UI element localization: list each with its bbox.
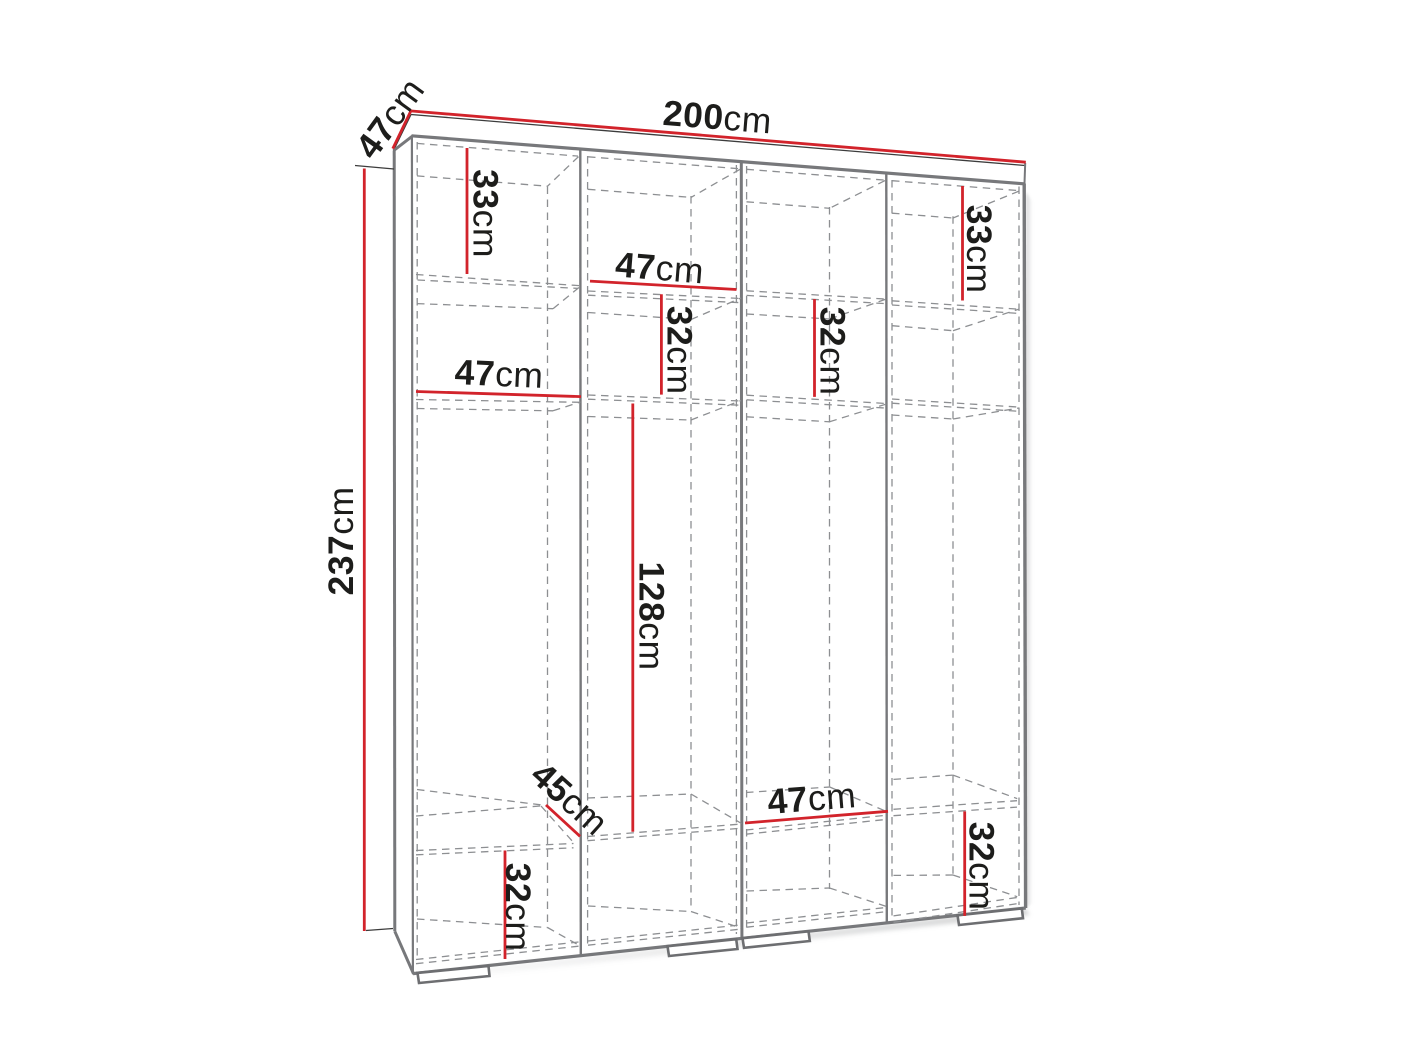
svg-text:33cm: 33cm (959, 205, 999, 294)
svg-text:47cm: 47cm (614, 245, 706, 292)
svg-text:32cm: 32cm (812, 307, 852, 396)
svg-text:47cm: 47cm (348, 71, 433, 166)
svg-text:32cm: 32cm (498, 863, 538, 952)
svg-text:128cm: 128cm (631, 561, 671, 670)
svg-text:47cm: 47cm (766, 775, 858, 822)
svg-text:32cm: 32cm (961, 822, 1001, 911)
svg-text:237cm: 237cm (321, 486, 361, 595)
svg-text:47cm: 47cm (454, 352, 544, 396)
svg-text:32cm: 32cm (659, 306, 699, 395)
svg-text:45cm: 45cm (523, 754, 616, 843)
svg-text:33cm: 33cm (465, 169, 505, 258)
